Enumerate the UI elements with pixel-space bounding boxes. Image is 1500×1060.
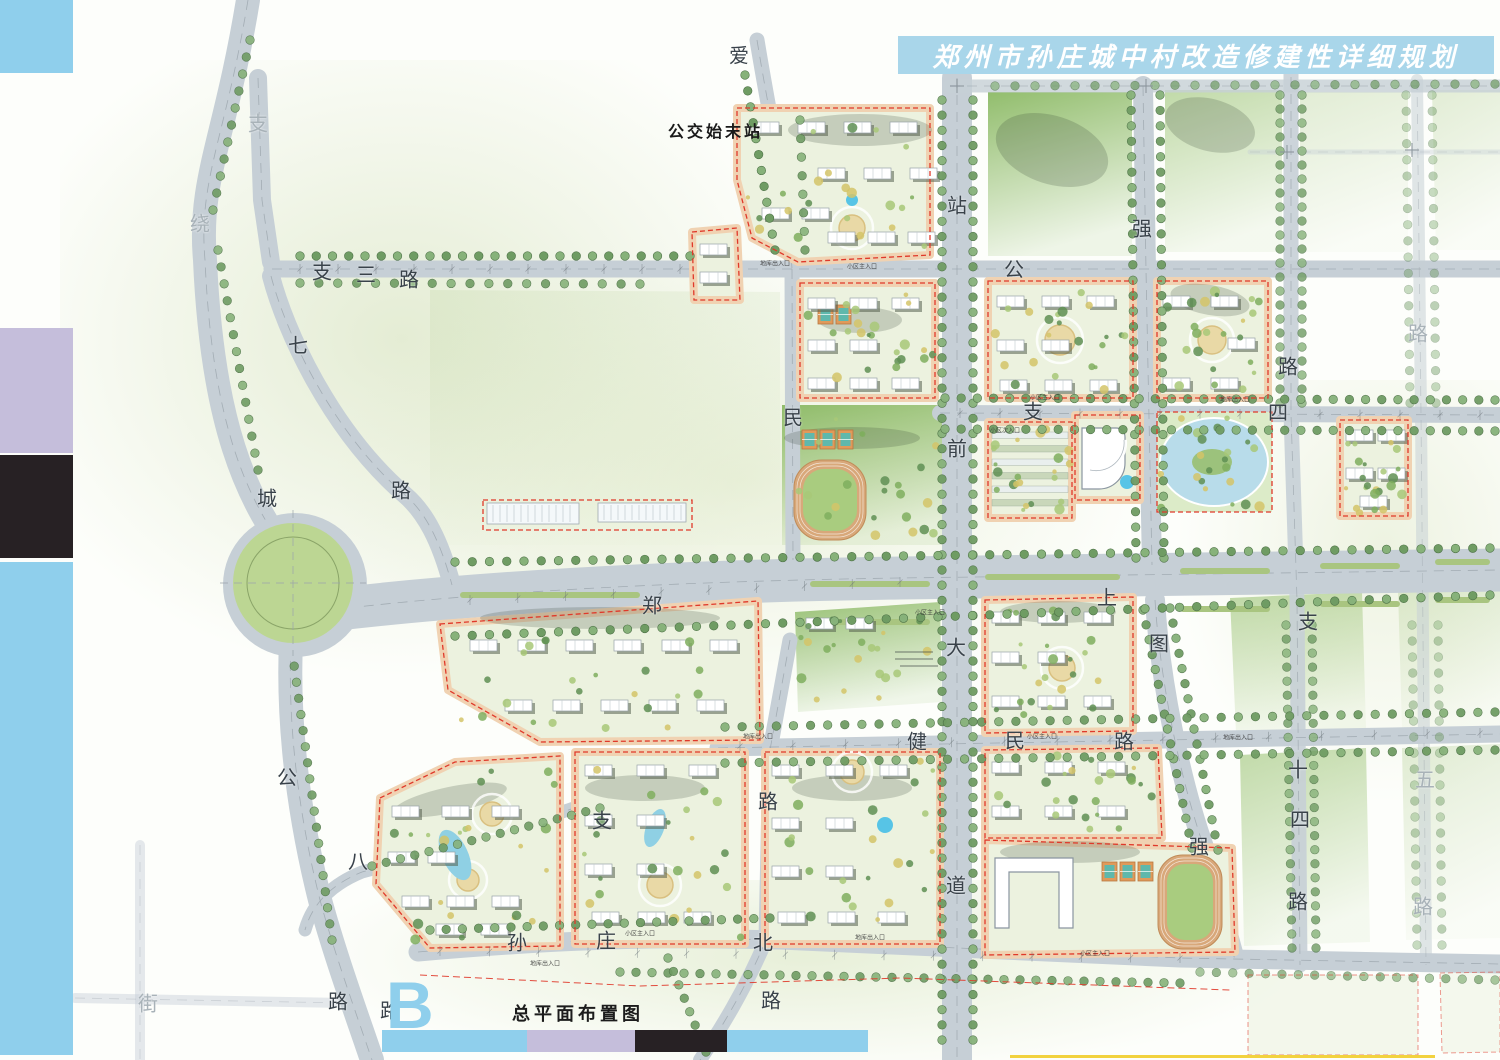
entrance-label: 地库出入口 [760,259,790,268]
road-label: 民 [1005,725,1025,754]
road-label: 三 [356,259,376,288]
road-label: 路 [1114,726,1134,755]
road-label: 支 [1298,606,1318,635]
plan-title: 郑州市孙庄城中村改造修建性详细规划 [932,37,1459,74]
bus-terminal-label: 公交始末站 [668,118,763,142]
road-label: 庄 [596,925,616,954]
sheet-letter: B [386,972,434,1038]
road-label: 孙 [507,927,527,956]
road-label: 公 [1004,254,1024,283]
footer-bar-lavender [527,1030,635,1052]
road-label: 路 [399,264,419,293]
road-label: 强 [1189,831,1209,860]
title-banner: 郑州市孙庄城中村改造修建性详细规划 [898,36,1494,74]
site-plan-drawing [0,0,1500,1060]
entrance-label: 小区次入口 [990,426,1020,435]
road-label: 路 [758,786,778,815]
road-label: 爱 [729,40,749,69]
road-label: 图 [1149,628,1169,657]
road-label: 路 [1288,886,1308,915]
road-label: 前 [947,433,967,462]
footer-bar-blue2 [727,1030,868,1052]
road-label: 路 [1413,891,1433,920]
footer-yellow-line [1010,1055,1435,1058]
road-label: 支 [312,256,332,285]
road-label: 路 [1408,318,1428,347]
road-label: 道 [946,870,966,899]
road-label: 支 [592,805,612,834]
entrance-label: 小区主入口 [847,262,877,271]
road-label: 上 [1097,582,1117,611]
road-label: 北 [753,927,773,956]
road-label: 强 [1132,213,1152,242]
road-label: 八 [348,846,368,875]
road-label: 城 [257,483,277,512]
entrance-label: 小区主入口 [1027,732,1057,741]
masterplan-page: 郑州市孙庄城中村改造修建性详细规划 公交始末站 支绕支三路七路城公路路街爱民路站… [0,0,1500,1060]
entrance-label: 小区主入口 [625,929,655,938]
entrance-label: 小区主入口 [1030,393,1060,402]
entrance-label: 小区主入口 [1080,949,1110,958]
road-label: 路 [761,985,781,1014]
entrance-label: 地库出入口 [1223,733,1253,742]
accent-bar-black [0,455,73,558]
entrance-label: 小区主入口 [915,608,945,617]
entrance-label: 地库出入口 [743,732,773,741]
road-label: 七 [288,330,308,359]
road-label: 站 [947,190,967,219]
sheet-caption: 总平面布置图 [512,1000,644,1026]
entrance-label: 地库出入口 [530,959,560,968]
accent-bar-lavender [0,328,73,453]
road-label: 公 [277,762,297,791]
road-label: 十 [1288,754,1308,783]
footer-bar-black [635,1030,727,1052]
road-label: 路 [1278,351,1298,380]
road-label: 绕 [190,208,210,237]
road-label: 四 [1268,397,1288,426]
road-label: 大 [946,632,966,661]
entrance-label: 地库出入口 [1220,395,1250,404]
road-label: 街 [138,988,158,1017]
road-label: 民 [783,402,803,431]
road-label: 路 [328,986,348,1015]
road-label: 健 [907,726,927,755]
footer-bar-blue [382,1030,527,1052]
road-label: 五 [1415,764,1435,793]
accent-bar-blue-left [0,562,73,1055]
road-label: 郑 [642,590,662,619]
road-label: 路 [391,475,411,504]
road-label: 支 [248,108,268,137]
accent-bar-blue-top [0,0,73,73]
road-label: 四 [1290,804,1310,833]
entrance-label: 地库出入口 [855,933,885,942]
